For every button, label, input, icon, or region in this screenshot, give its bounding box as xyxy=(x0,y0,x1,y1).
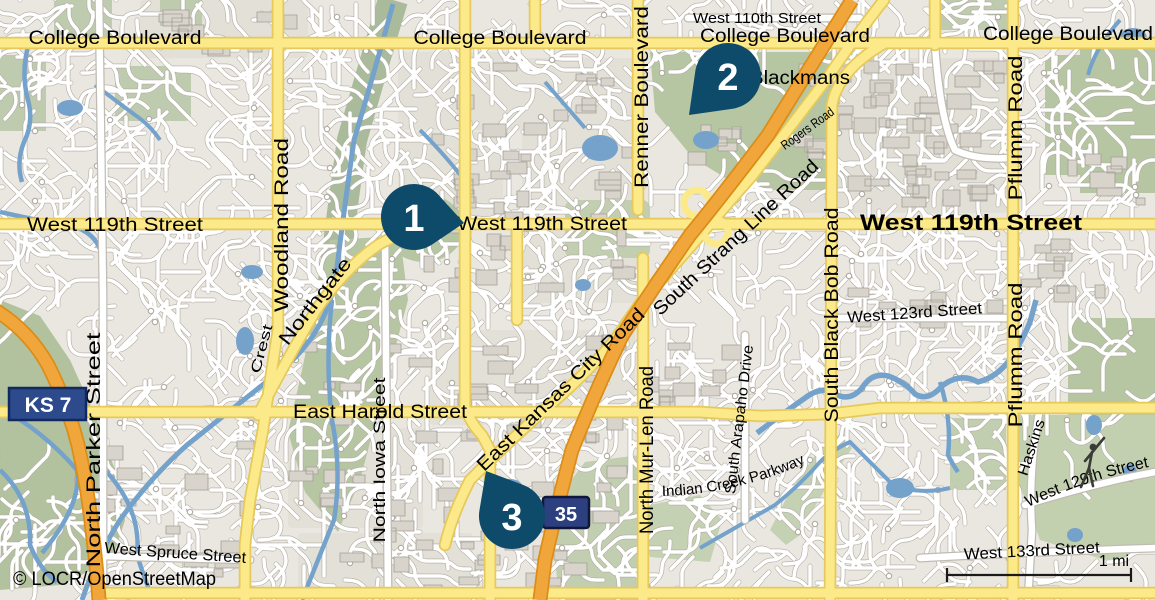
svg-text:Woodland Road: Woodland Road xyxy=(272,138,293,312)
svg-text:KS 7: KS 7 xyxy=(25,394,72,417)
svg-text:2: 2 xyxy=(717,57,738,99)
svg-text:3: 3 xyxy=(501,497,522,539)
svg-text:Pflumm Road: Pflumm Road xyxy=(1006,283,1027,428)
svg-text:35: 35 xyxy=(555,504,577,526)
svg-text:North Mur-Len Road: North Mur-Len Road xyxy=(637,366,658,534)
svg-text:South Black Bob Road: South Black Bob Road xyxy=(822,208,843,423)
svg-text:College Boulevard: College Boulevard xyxy=(983,24,1153,45)
svg-text:West 119th Street: West 119th Street xyxy=(27,215,204,236)
svg-text:North Iowa Street: North Iowa Street xyxy=(370,377,389,542)
svg-text:© LOCR/OpenStreetMap: © LOCR/OpenStreetMap xyxy=(13,569,216,590)
svg-text:College Boulevard: College Boulevard xyxy=(414,28,587,49)
svg-text:North Parker Street: North Parker Street xyxy=(84,331,105,567)
svg-text:1: 1 xyxy=(403,198,424,240)
svg-text:Pflumm Road: Pflumm Road xyxy=(1006,56,1027,201)
svg-text:West 119th Street: West 119th Street xyxy=(457,214,628,235)
svg-text:West 119th Street: West 119th Street xyxy=(860,210,1083,235)
svg-text:West 110th Street: West 110th Street xyxy=(693,10,822,27)
svg-text:College Boulevard: College Boulevard xyxy=(29,28,202,49)
svg-text:Renner Boulevard: Renner Boulevard xyxy=(632,6,653,188)
svg-text:Blackmans: Blackmans xyxy=(750,68,850,89)
svg-text:1 mi: 1 mi xyxy=(1099,553,1129,570)
